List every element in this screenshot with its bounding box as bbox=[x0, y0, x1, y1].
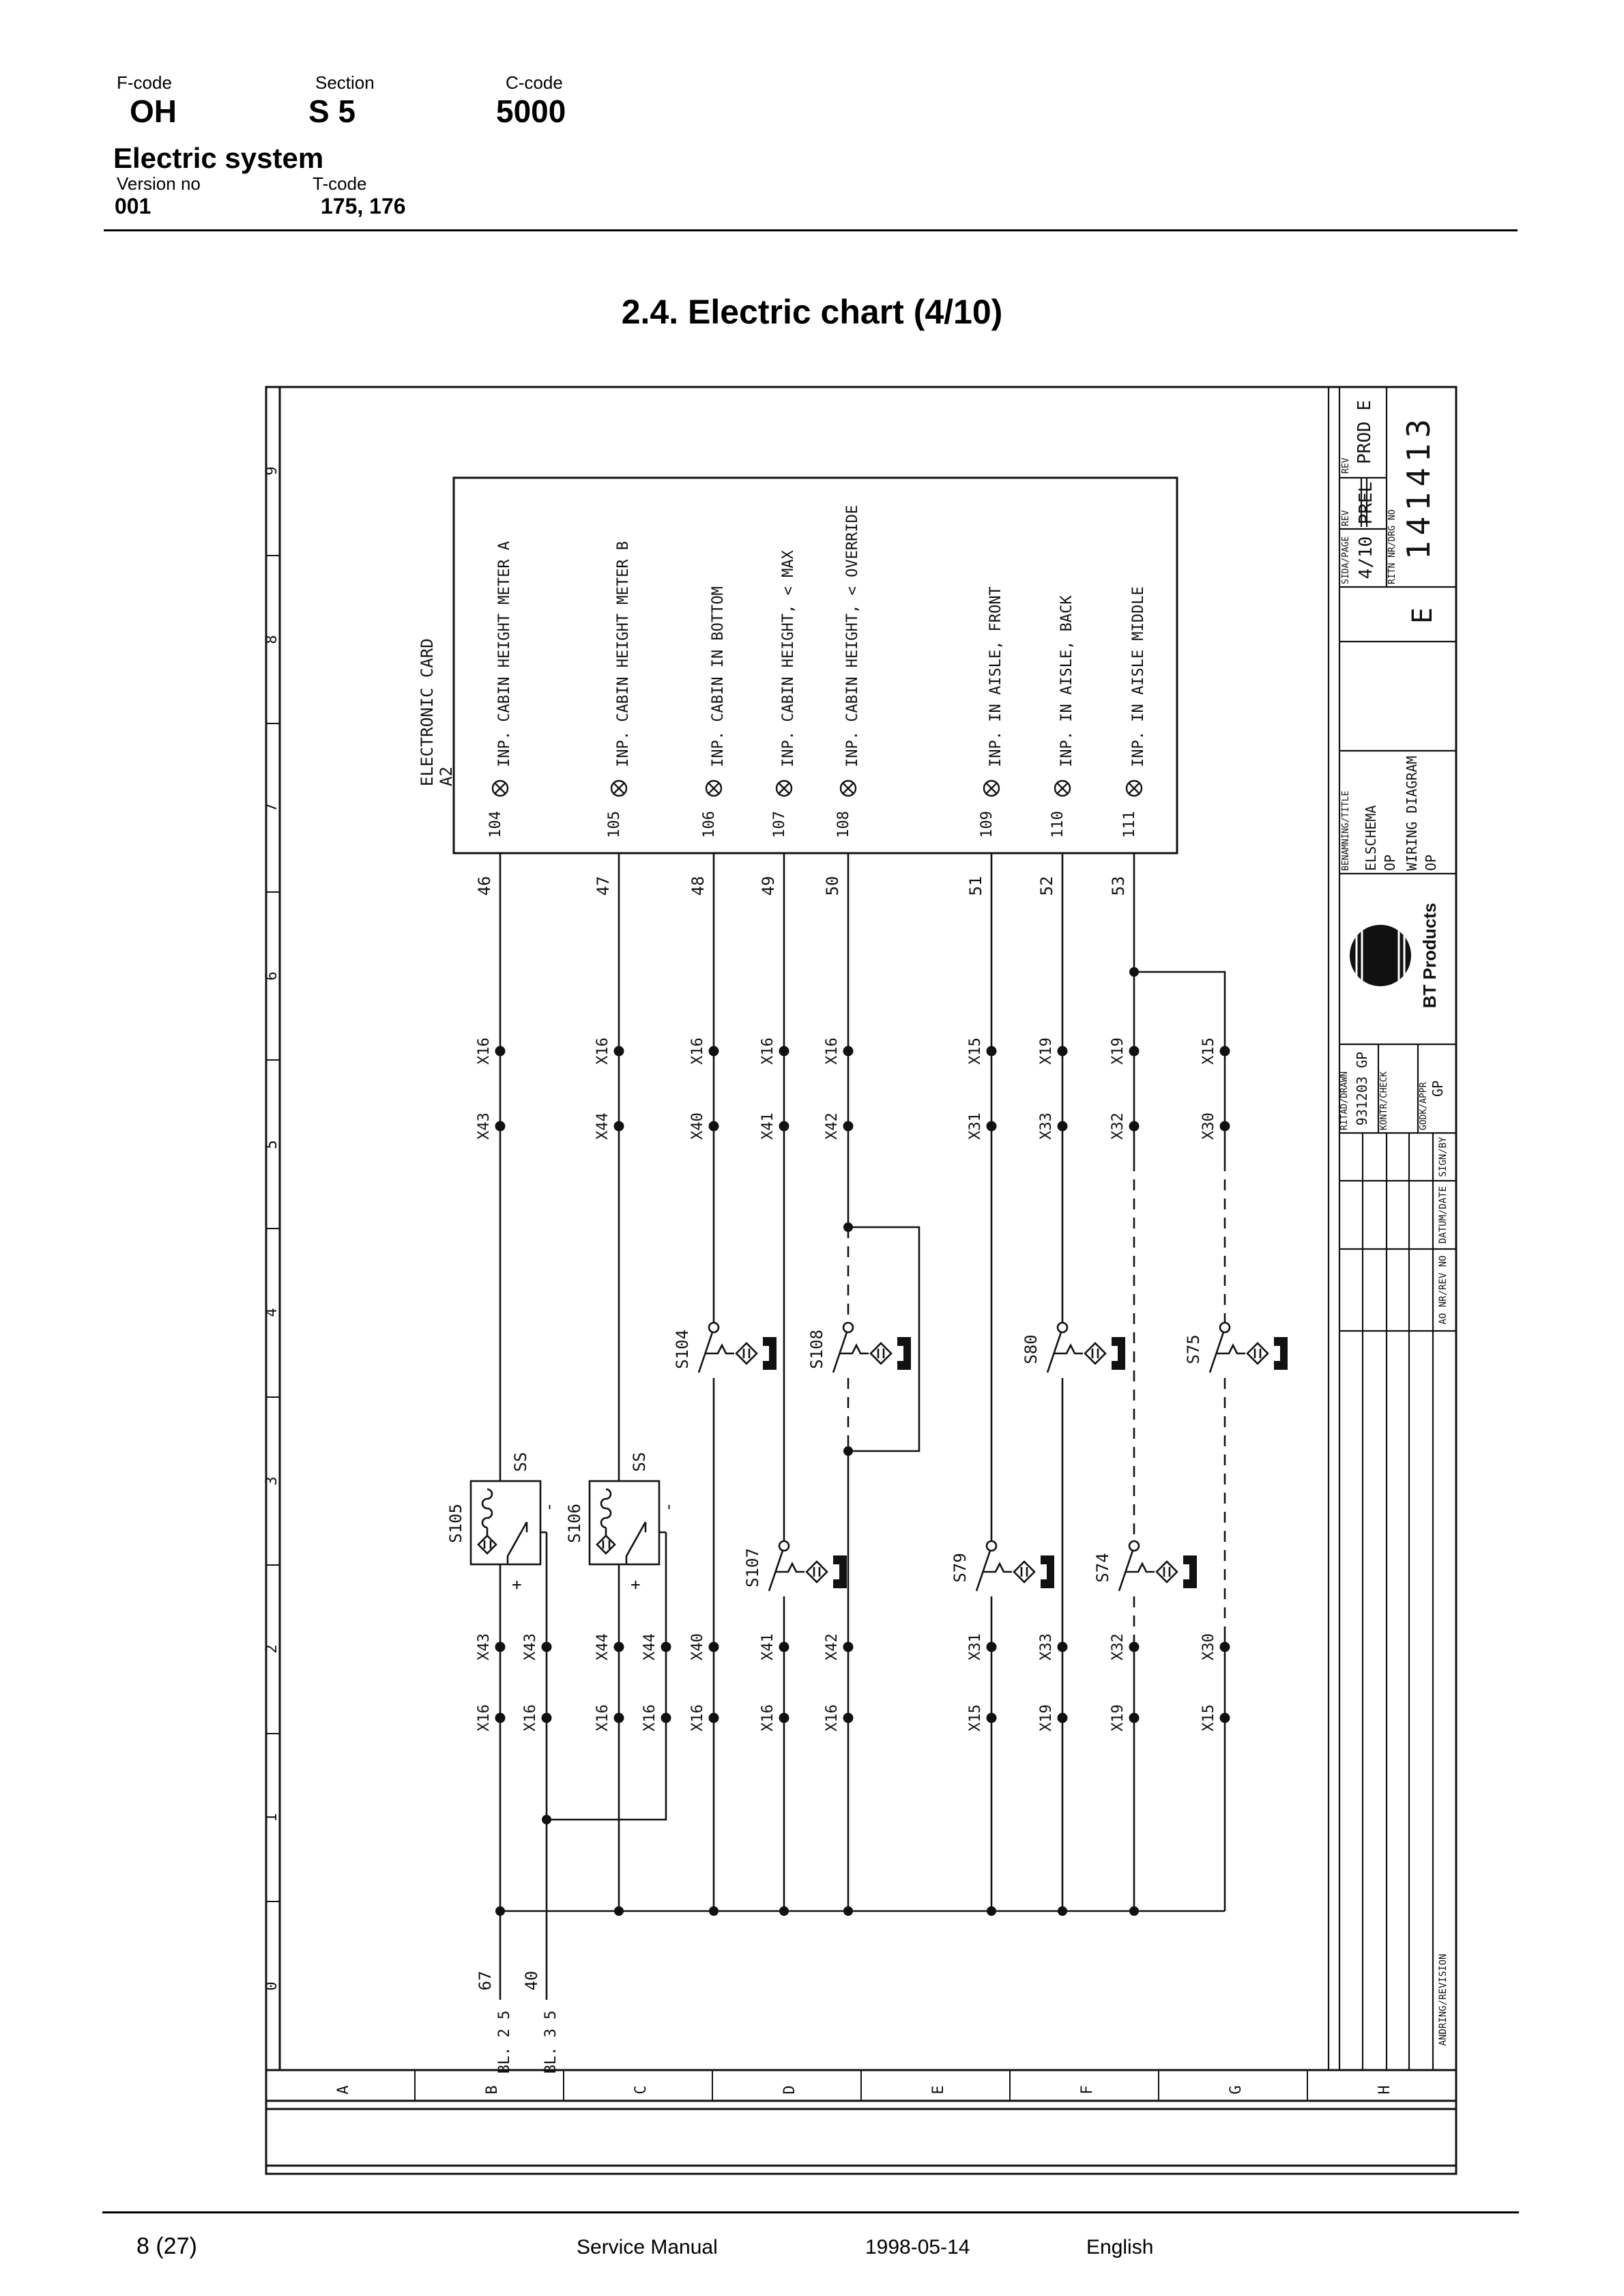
connector-label: X16 bbox=[476, 1037, 493, 1065]
connector-label: X44 bbox=[641, 1633, 658, 1661]
connector-label: X41 bbox=[759, 1633, 777, 1661]
connector-label: X41 bbox=[759, 1113, 777, 1140]
pin-signal: INP. CABIN IN BOTTOM bbox=[710, 586, 727, 767]
exit-wire-number: 40 bbox=[522, 1971, 541, 1991]
col-scale-6: 6 bbox=[263, 971, 280, 980]
pin-number: 105 bbox=[606, 811, 623, 838]
tb-page-value: 4/10 bbox=[1356, 536, 1376, 579]
col-scale-5: 5 bbox=[263, 1140, 280, 1149]
connector-label: X44 bbox=[594, 1113, 611, 1140]
bt-brand-text: BT Products bbox=[1419, 903, 1440, 1009]
switch-label: S104 bbox=[673, 1330, 692, 1369]
col-scale-7: 7 bbox=[263, 803, 280, 812]
connector-label: X44 bbox=[594, 1633, 611, 1661]
pin-signal: INP. CABIN HEIGHT METER A bbox=[496, 541, 513, 767]
sensor-labels: S105 S106 SS SS + + - - bbox=[446, 1452, 678, 1590]
connector-label: X19 bbox=[1110, 1704, 1127, 1732]
connector-label: X42 bbox=[824, 1113, 841, 1140]
connector-label: X15 bbox=[1200, 1037, 1217, 1065]
tb-check-label: KONTR/CHECK bbox=[1379, 1072, 1389, 1130]
tb-drgno-label: RITN NR/DRG NO bbox=[1387, 509, 1397, 584]
tb-name2: OP bbox=[1382, 855, 1398, 871]
row-scale: A B C D E F G H bbox=[335, 2085, 1393, 2094]
wire-number: 49 bbox=[759, 876, 778, 896]
connector-dots bbox=[495, 967, 1230, 1916]
connector-label: X31 bbox=[967, 1113, 984, 1140]
tb-revision-label: ANDRING/REVISION bbox=[1438, 1954, 1449, 2046]
row-scale-d: D bbox=[781, 2085, 798, 2094]
exit-sheet-ref: BL. 3 5 bbox=[542, 2011, 560, 2074]
column-scale-ticks bbox=[266, 556, 280, 1902]
wire-number: 47 bbox=[594, 876, 613, 896]
manual-page: F-code OH Section S 5 C-code 5000 Electr… bbox=[0, 0, 1624, 2296]
connector-label: X16 bbox=[594, 1704, 611, 1732]
pin-signal: INP. CABIN HEIGHT, < MAX bbox=[780, 549, 797, 767]
footer-doc-name: Service Manual bbox=[577, 2236, 718, 2259]
connector-label: X33 bbox=[1038, 1633, 1055, 1661]
pin-signal: INP. IN AISLE, FRONT bbox=[987, 586, 1004, 767]
connector-label: X42 bbox=[824, 1633, 841, 1661]
switch-label: S108 bbox=[807, 1330, 826, 1369]
connector-label: X16 bbox=[689, 1704, 706, 1732]
tb-page-label: SIDA/PAGE bbox=[1341, 536, 1351, 584]
connector-label: X43 bbox=[476, 1113, 493, 1140]
sensor-ss-label: SS bbox=[630, 1452, 649, 1472]
connector-label: X16 bbox=[824, 1037, 841, 1065]
col-scale-3: 3 bbox=[263, 1476, 280, 1485]
switch-label: S75 bbox=[1184, 1334, 1203, 1364]
tb-drgno-value: 141413 bbox=[1400, 414, 1437, 560]
connector-label: X33 bbox=[1038, 1113, 1055, 1140]
pin-signals: INP. CABIN HEIGHT METER A INP. CABIN HEI… bbox=[496, 505, 1147, 767]
sheet-frame bbox=[266, 387, 1456, 2174]
wire-number: 51 bbox=[966, 876, 985, 896]
connector-label: X16 bbox=[641, 1704, 658, 1732]
connector-label: X19 bbox=[1038, 1704, 1055, 1732]
connector-label: X16 bbox=[824, 1704, 841, 1732]
tb-rev-value: PROD E bbox=[1354, 400, 1375, 464]
bt-logo: BT BT Products bbox=[1350, 903, 1440, 1009]
tb-rev2-label: REV bbox=[1341, 510, 1351, 526]
exit-wire-number: 67 bbox=[476, 1971, 495, 1991]
connector-label: X32 bbox=[1110, 1113, 1127, 1140]
sensor-label: S106 bbox=[565, 1504, 584, 1543]
col-scale-8: 8 bbox=[263, 635, 280, 644]
connector-label: X16 bbox=[759, 1704, 777, 1732]
wire-number: 46 bbox=[475, 876, 494, 896]
col-scale-0: 0 bbox=[263, 1981, 280, 1990]
col-scale-4: 4 bbox=[263, 1308, 280, 1317]
pin-signal: INP. IN AISLE, BACK bbox=[1058, 595, 1075, 767]
row-scale-h: H bbox=[1376, 2085, 1393, 2094]
tb-name3: WIRING DIAGRAM bbox=[1404, 756, 1420, 871]
connector-label: X43 bbox=[522, 1633, 539, 1661]
tb-rev-label: REV bbox=[1341, 457, 1351, 474]
sensor-label: S105 bbox=[446, 1504, 465, 1543]
tb-sign-label: SIGN/BY bbox=[1438, 1136, 1449, 1177]
card-label: ELECTRONIC CARD bbox=[418, 638, 437, 786]
row-scale-a: A bbox=[335, 2085, 352, 2094]
tb-revno-label: AO NR/REV NO bbox=[1438, 1255, 1449, 1324]
footer-rule bbox=[102, 2211, 1519, 2213]
pin-number: 109 bbox=[978, 811, 996, 838]
pin-number: 110 bbox=[1049, 811, 1067, 838]
sensor-plus-label: + bbox=[507, 1580, 526, 1590]
row-scale-b: B bbox=[484, 2085, 501, 2094]
wire-numbers: 46 47 48 49 50 51 52 53 bbox=[475, 876, 1128, 896]
wiring-diagram: 9 8 7 6 5 4 3 2 1 0 A B C D E F G H bbox=[0, 0, 1624, 2296]
connector-label: X30 bbox=[1200, 1633, 1217, 1661]
connector-label: X40 bbox=[689, 1633, 706, 1661]
card-ref: A2 bbox=[437, 766, 456, 786]
switch-label: S107 bbox=[743, 1548, 762, 1588]
wire-number: 48 bbox=[688, 876, 708, 896]
tb-name4: OP bbox=[1423, 855, 1439, 871]
connector-label: X31 bbox=[967, 1633, 984, 1661]
connector-label: X16 bbox=[759, 1037, 777, 1065]
sensor-plus-label: + bbox=[626, 1580, 645, 1590]
connector-label: X15 bbox=[967, 1037, 984, 1065]
pin-numbers: 104 105 106 107 108 109 110 111 bbox=[487, 811, 1138, 838]
pin-signal: INP. IN AISLE MIDDLE bbox=[1130, 586, 1147, 767]
footer-page-number: 8 (27) bbox=[136, 2233, 197, 2260]
wire-number: 52 bbox=[1037, 876, 1056, 896]
row-scale-ticks bbox=[415, 2070, 1307, 2101]
wires bbox=[500, 853, 1225, 2000]
tb-appr-label: GODK/APPR bbox=[1419, 1082, 1429, 1130]
wire-number: 53 bbox=[1109, 876, 1128, 896]
sensor-ss-label: SS bbox=[511, 1452, 530, 1472]
wire-number: 50 bbox=[823, 876, 842, 896]
tb-name-label: BENAMNING/TITLE bbox=[1341, 791, 1351, 871]
pin-number: 108 bbox=[835, 811, 852, 838]
pin-number: 111 bbox=[1121, 811, 1138, 838]
connector-label: X16 bbox=[594, 1037, 611, 1065]
switch-label: S74 bbox=[1093, 1553, 1112, 1582]
connector-label: X40 bbox=[689, 1113, 706, 1140]
col-scale-2: 2 bbox=[263, 1644, 280, 1653]
bt-logo-text: BT bbox=[1366, 940, 1392, 971]
pin-number: 107 bbox=[771, 811, 788, 838]
sensor-minus-label: - bbox=[658, 1502, 678, 1512]
footer-date: 1998-05-14 bbox=[865, 2236, 970, 2259]
tb-drawn-label: RITAD/DRAWN bbox=[1339, 1072, 1350, 1130]
switch-label: S79 bbox=[951, 1553, 970, 1582]
row-scale-f: F bbox=[1079, 2085, 1096, 2094]
pin-signal: INP. CABIN HEIGHT, < OVERRIDE bbox=[844, 505, 861, 767]
connector-label: X43 bbox=[476, 1633, 493, 1661]
tb-drawn-value: 931203 GP bbox=[1354, 1052, 1370, 1125]
pin-number: 104 bbox=[487, 811, 504, 838]
connector-label: X16 bbox=[476, 1704, 493, 1732]
row-scale-g: G bbox=[1228, 2085, 1245, 2094]
footer-language: English bbox=[1086, 2236, 1153, 2259]
card-pin-symbols bbox=[493, 781, 1142, 796]
connector-label: X15 bbox=[1200, 1704, 1217, 1732]
col-scale-1: 1 bbox=[263, 1813, 280, 1822]
switch-label: S80 bbox=[1021, 1334, 1041, 1364]
row-scale-c: C bbox=[633, 2085, 650, 2094]
col-scale-9: 9 bbox=[263, 466, 280, 475]
connector-label: X32 bbox=[1110, 1633, 1127, 1661]
connector-label: X15 bbox=[967, 1704, 984, 1732]
connector-label: X16 bbox=[689, 1037, 706, 1065]
title-block-grid bbox=[1329, 387, 1456, 2070]
tb-date-label: DATUM/DATE bbox=[1438, 1186, 1449, 1244]
tb-appr-value: GP bbox=[1430, 1080, 1446, 1097]
exit-sheet-ref: BL. 2 5 bbox=[496, 2011, 513, 2074]
pin-number: 106 bbox=[701, 811, 718, 838]
row-scale-e: E bbox=[930, 2085, 947, 2094]
connector-label: X19 bbox=[1038, 1037, 1055, 1065]
sensor-minus-label: - bbox=[539, 1502, 558, 1512]
tb-size: E bbox=[1407, 607, 1438, 624]
connector-label: X19 bbox=[1110, 1037, 1127, 1065]
tb-rev2-value: PREL bbox=[1356, 482, 1376, 525]
connector-label: X16 bbox=[522, 1704, 539, 1732]
connector-label: X30 bbox=[1200, 1113, 1217, 1140]
tb-name1: ELSCHEMA bbox=[1363, 805, 1379, 871]
pin-signal: INP. CABIN HEIGHT METER B bbox=[615, 541, 632, 767]
